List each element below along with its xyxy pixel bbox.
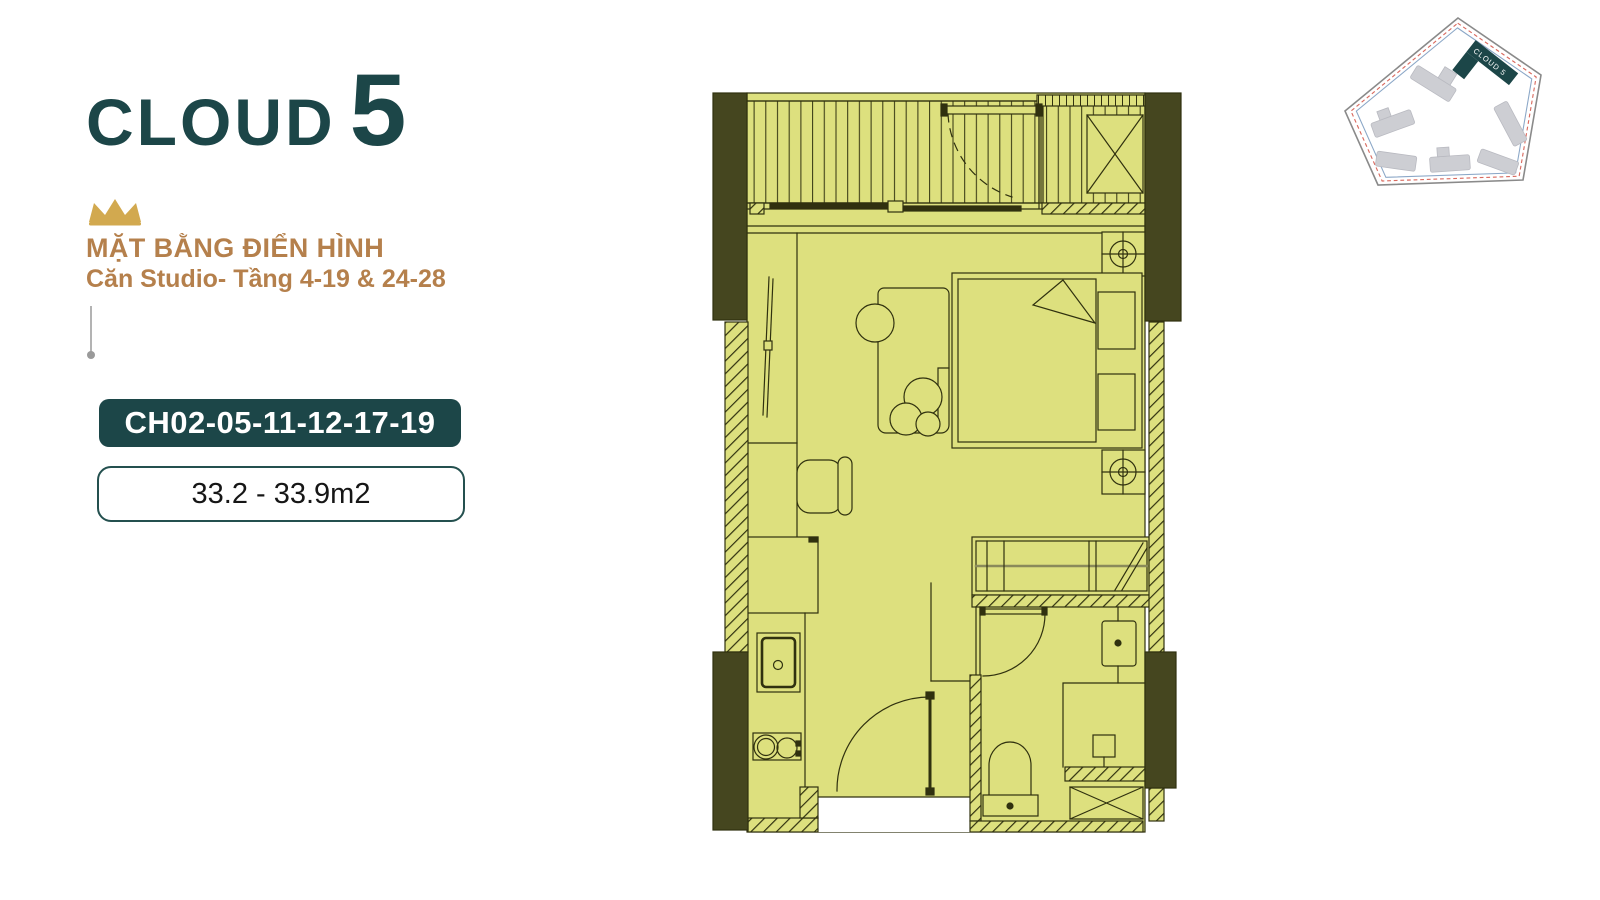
brand-number: 5 — [350, 52, 407, 169]
brand-logo: CLOUD 5 — [86, 52, 406, 169]
fridge — [741, 537, 818, 613]
railing — [1037, 95, 1145, 106]
kitchen-sink — [757, 633, 800, 692]
shower — [1070, 787, 1143, 819]
left-wall — [725, 322, 748, 652]
unit-code-badge: CH02-05-11-12-17-19 — [99, 399, 461, 447]
wardrobe — [972, 537, 1155, 595]
bathroom-top-wall — [972, 595, 1150, 607]
bathroom-left-wall — [970, 675, 981, 821]
balcony — [747, 95, 1145, 214]
site-plan: CLOUD 5 — [1338, 12, 1548, 202]
right-wall — [1149, 322, 1164, 652]
cooktop — [753, 733, 801, 760]
bottom-wall-left — [748, 818, 818, 832]
page-subtitle: Căn Studio- Tầng 4-19 & 24-28 — [86, 265, 446, 294]
stool — [856, 304, 894, 342]
pointer-line — [90, 306, 92, 352]
bottom-wall-right — [970, 821, 1143, 832]
brand-name: CLOUD — [86, 84, 336, 160]
page: CLOUD 5 CLOUD 5 MẶT BẰNG ĐIỂN HÌNH Căn S… — [0, 0, 1600, 900]
site-building-cloud5: CLOUD 5 — [1452, 40, 1518, 103]
wall-under-balcony — [1042, 203, 1145, 214]
ceiling-fan-symbol-top — [1102, 232, 1145, 276]
floor-plan — [695, 85, 1185, 838]
entry-opening — [818, 797, 970, 832]
armchair — [797, 457, 852, 515]
unit-area-box: 33.2 - 33.9m2 — [97, 466, 465, 522]
ac-unit-box — [1087, 115, 1143, 193]
bed — [952, 273, 1142, 448]
ceiling-fan-symbol-bottom — [1102, 450, 1145, 494]
deck-slats — [747, 101, 1039, 203]
crown-icon — [86, 196, 144, 231]
page-title: MẶT BẰNG ĐIỂN HÌNH — [86, 233, 384, 264]
